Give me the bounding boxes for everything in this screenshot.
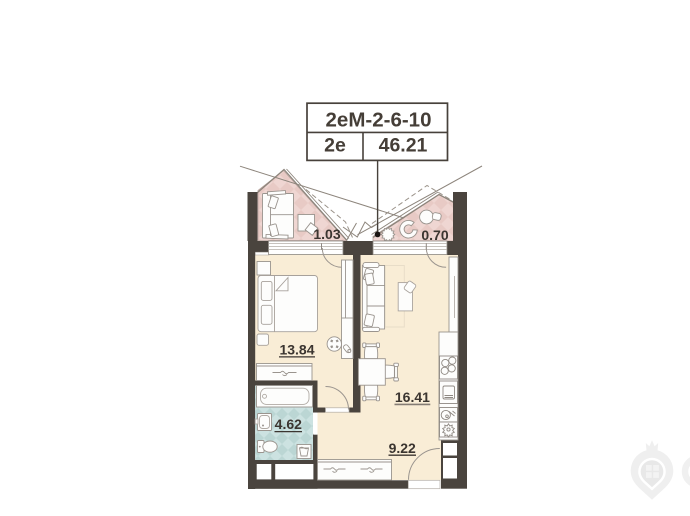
svg-text:2е: 2е xyxy=(324,134,346,156)
svg-text:46.21: 46.21 xyxy=(379,134,428,156)
svg-text:0.70: 0.70 xyxy=(421,227,448,243)
svg-text:16.41: 16.41 xyxy=(395,389,430,405)
svg-text:1.03: 1.03 xyxy=(313,226,340,242)
svg-text:13.84: 13.84 xyxy=(279,342,314,358)
svg-text:2еМ-2-6-10: 2еМ-2-6-10 xyxy=(326,108,432,131)
svg-text:4.62: 4.62 xyxy=(275,416,302,432)
svg-text:9.22: 9.22 xyxy=(389,440,416,456)
